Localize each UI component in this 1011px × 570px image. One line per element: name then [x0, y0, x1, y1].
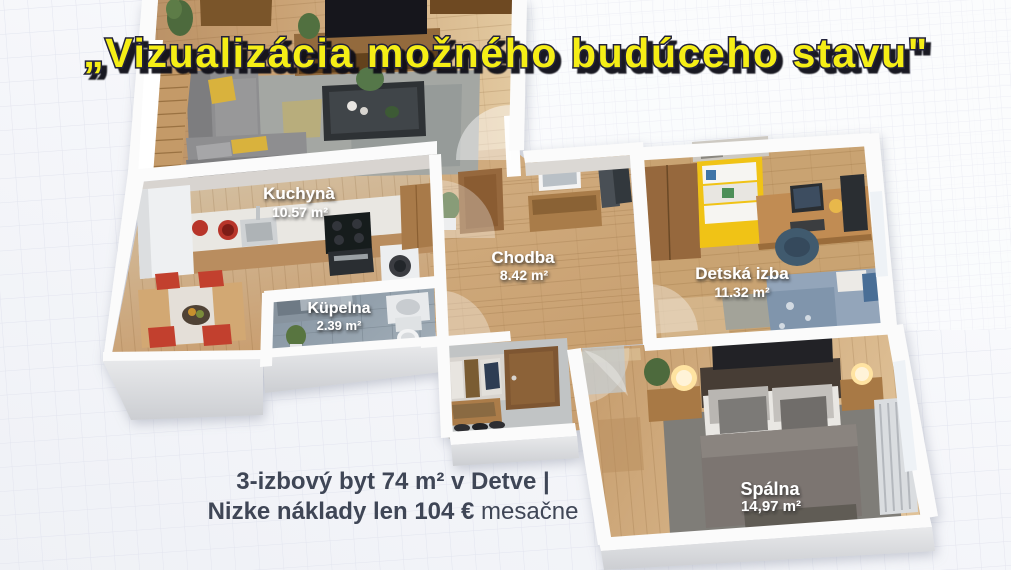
svg-text:8.42 m²: 8.42 m²	[500, 267, 549, 283]
svg-text:„Vizualizácia možného budúceho: „Vizualizácia možného budúceho stavu"	[83, 30, 929, 76]
svg-text:3-izbový byt 74 m² v Detve |: 3-izbový byt 74 m² v Detve |	[236, 468, 550, 495]
svg-text:Chodba: Chodba	[491, 248, 555, 267]
svg-text:Spálna: Spálna	[740, 479, 800, 499]
svg-text:Nizke náklady len 104 € mesačn: Nizke náklady len 104 € mesačne	[208, 498, 579, 525]
svg-text:Küpelna: Küpelna	[307, 300, 370, 317]
svg-text:Detská izba: Detská izba	[695, 264, 789, 283]
svg-text:10.57 m²: 10.57 m²	[272, 204, 328, 220]
svg-text:2.39 m²: 2.39 m²	[317, 318, 362, 333]
svg-text:11.32 m²: 11.32 m²	[714, 284, 770, 300]
svg-text:Kuchynà: Kuchynà	[263, 184, 335, 203]
svg-text:14,97 m²: 14,97 m²	[741, 498, 801, 515]
